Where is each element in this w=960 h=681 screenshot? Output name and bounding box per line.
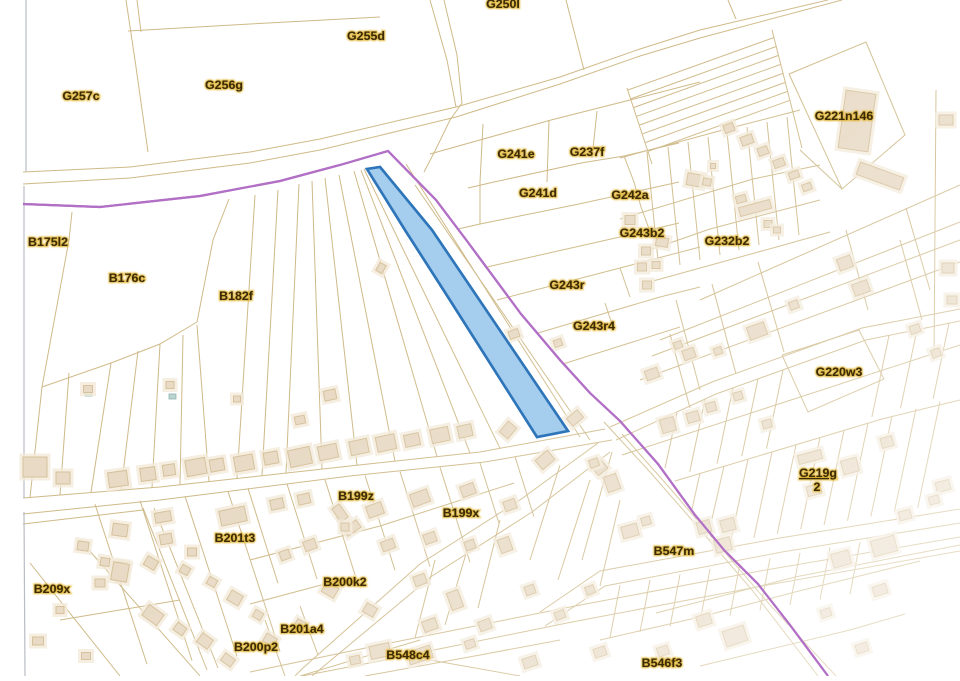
svg-text:B176c: B176c (109, 271, 146, 285)
svg-text:B547m: B547m (654, 544, 695, 558)
svg-text:2: 2 (814, 480, 821, 494)
svg-text:B199x: B199x (443, 506, 480, 520)
svg-text:B201t3: B201t3 (215, 531, 256, 545)
svg-text:G241d: G241d (519, 186, 557, 200)
svg-text:G243b2: G243b2 (620, 226, 665, 240)
svg-text:G219g: G219g (799, 466, 837, 480)
svg-text:G241e: G241e (497, 147, 534, 161)
svg-text:B175l2: B175l2 (28, 235, 68, 249)
svg-text:G256g: G256g (205, 78, 243, 92)
svg-text:G237f: G237f (570, 145, 605, 159)
svg-text:G242a: G242a (611, 188, 648, 202)
svg-text:G255d: G255d (347, 29, 385, 43)
svg-text:B201a4: B201a4 (280, 622, 324, 636)
svg-text:G250l: G250l (486, 0, 520, 11)
svg-text:G220w3: G220w3 (816, 365, 863, 379)
svg-text:B209x: B209x (34, 582, 71, 596)
svg-text:G243r4: G243r4 (573, 319, 615, 333)
svg-text:B548c4: B548c4 (386, 648, 430, 662)
svg-text:B182f: B182f (219, 289, 254, 303)
svg-text:G232b2: G232b2 (705, 234, 750, 248)
svg-text:G221n146: G221n146 (815, 109, 874, 123)
svg-text:G257c: G257c (62, 89, 99, 103)
svg-text:B200k2: B200k2 (323, 575, 367, 589)
svg-text:B199z: B199z (338, 489, 374, 503)
svg-text:G243r: G243r (549, 278, 584, 292)
svg-text:B546f3: B546f3 (642, 656, 683, 670)
svg-text:B200p2: B200p2 (234, 640, 278, 654)
